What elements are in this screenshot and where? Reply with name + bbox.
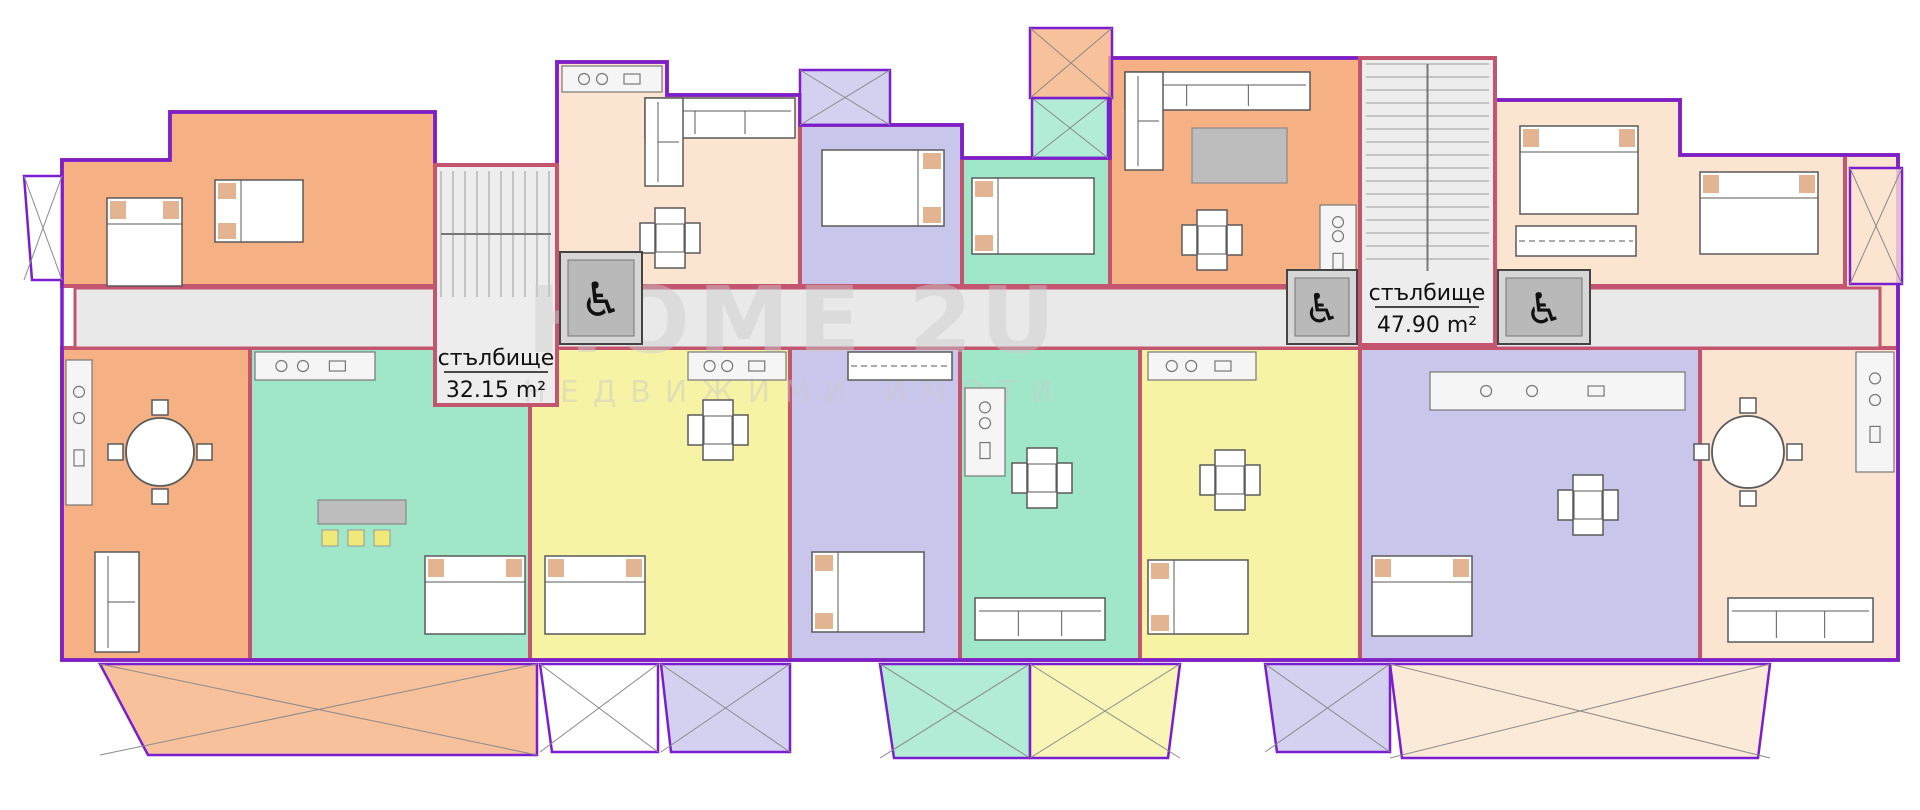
wheelchair-icon: ♿	[1525, 284, 1563, 334]
pillow	[923, 207, 941, 223]
kitchen-counter	[255, 352, 375, 380]
chair	[1787, 444, 1802, 460]
balcony-yellow-center	[1030, 664, 1180, 758]
wheelchair-icon: ♿	[1304, 284, 1340, 332]
sofa-body	[1728, 598, 1873, 642]
staircase-left-name: стълбище	[438, 346, 555, 371]
floor-plan-canvas: HOME 2U НЕДВИЖИМИ ИМОТИ ♿♿♿ стълбище 32.…	[0, 0, 1920, 810]
furniture-bed	[822, 150, 944, 226]
furniture-bed	[425, 556, 525, 634]
furniture-sofa	[645, 98, 683, 186]
pillow	[218, 183, 236, 199]
pillow	[1523, 129, 1539, 147]
table-top	[656, 224, 684, 252]
pillow	[1375, 559, 1391, 577]
table-top	[1216, 466, 1244, 494]
furniture-ctable	[318, 500, 406, 524]
balcony-teal-center	[880, 664, 1030, 758]
kitchen-counter	[1148, 352, 1256, 380]
table-top	[704, 416, 732, 444]
pillow	[110, 201, 126, 219]
balcony-orange-left	[100, 664, 537, 755]
kitchen-counter	[1430, 372, 1685, 410]
furniture-sofa	[95, 552, 139, 652]
balcony-cream-right	[1390, 664, 1770, 758]
kitchen-counter	[688, 352, 786, 380]
chair	[374, 530, 390, 546]
furniture-wardrobe	[1516, 226, 1636, 256]
balcony-lavender-2	[1265, 664, 1390, 752]
furniture-sofa	[1728, 598, 1873, 642]
furniture-kitchen	[1148, 352, 1256, 380]
terrace-lavender-top	[800, 70, 890, 125]
table-top	[1028, 464, 1056, 492]
chair	[348, 530, 364, 546]
balcony-lavender-1	[661, 664, 790, 752]
table-top	[1574, 491, 1602, 519]
chair	[197, 444, 212, 460]
pillow	[506, 559, 522, 577]
table-top	[1198, 226, 1226, 254]
staircase-right-name: стълбище	[1369, 281, 1486, 306]
elevator-right-2: ♿	[1498, 270, 1590, 344]
pillow	[1151, 615, 1169, 631]
chair	[152, 400, 168, 415]
furniture-kitchen	[688, 352, 786, 380]
chair	[1740, 491, 1756, 506]
pillow	[428, 559, 444, 577]
pillow	[815, 555, 833, 571]
balcony-cream-right-edge	[1850, 168, 1902, 284]
kitchen-counter	[965, 388, 1005, 476]
furniture-sofa	[975, 598, 1105, 640]
balcony-white-1	[540, 664, 658, 752]
pillow	[163, 201, 179, 219]
staircase-left-area: 32.15 m²	[446, 378, 546, 403]
chair	[1740, 398, 1756, 413]
furniture-bed	[1520, 126, 1638, 214]
balcony-white-left-edge	[24, 176, 62, 280]
furniture-kitchen	[255, 352, 375, 380]
staircase-right-area: 47.90 m²	[1377, 313, 1477, 338]
terrace-teal-top	[1032, 98, 1108, 158]
chair	[1694, 444, 1709, 460]
pillow	[1453, 559, 1469, 577]
coffee-table	[318, 500, 406, 524]
chair	[108, 444, 123, 460]
pillow	[975, 181, 993, 197]
furniture-bed	[545, 556, 645, 634]
elevator-right-1: ♿	[1287, 270, 1357, 344]
furniture-bed	[1372, 556, 1472, 636]
chair	[152, 489, 168, 504]
furniture-bed	[972, 178, 1094, 254]
pillow	[1151, 563, 1169, 579]
coffee-table	[1192, 128, 1287, 183]
pillow	[626, 559, 642, 577]
furniture-kitchen	[1430, 372, 1685, 410]
furniture-bed	[107, 198, 182, 286]
pillow	[1619, 129, 1635, 147]
pillow	[218, 223, 236, 239]
furniture-kitchen	[965, 388, 1005, 476]
furniture-sofa	[1125, 72, 1163, 170]
furniture-bed	[1148, 560, 1248, 634]
furniture-kitchen	[1856, 352, 1894, 472]
round-table	[126, 418, 194, 486]
pillow	[923, 153, 941, 169]
furniture-ctable	[1192, 128, 1287, 183]
round-table	[1712, 416, 1784, 488]
furniture-bed	[812, 552, 924, 632]
furniture-wardrobe	[848, 352, 952, 380]
kitchen-counter	[66, 360, 92, 505]
chair	[322, 530, 338, 546]
pillow	[975, 235, 993, 251]
pillow	[1799, 175, 1815, 193]
kitchen-counter	[1856, 352, 1894, 472]
furniture-bed	[1700, 172, 1818, 254]
pillow	[815, 613, 833, 629]
furniture-kitchen	[66, 360, 92, 505]
furniture-bed	[215, 180, 303, 242]
kitchen-counter	[562, 66, 662, 92]
elevator-left: ♿	[560, 252, 642, 344]
sofa-body	[975, 598, 1105, 640]
floor-plan: HOME 2U НЕДВИЖИМИ ИМОТИ ♿♿♿ стълбище 32.…	[0, 0, 1920, 810]
pillow	[1703, 175, 1719, 193]
furniture-chairs3	[322, 530, 390, 546]
terrace-orange-top	[1030, 28, 1112, 98]
wheelchair-icon: ♿	[580, 273, 623, 328]
pillow	[548, 559, 564, 577]
furniture-kitchen	[562, 66, 662, 92]
